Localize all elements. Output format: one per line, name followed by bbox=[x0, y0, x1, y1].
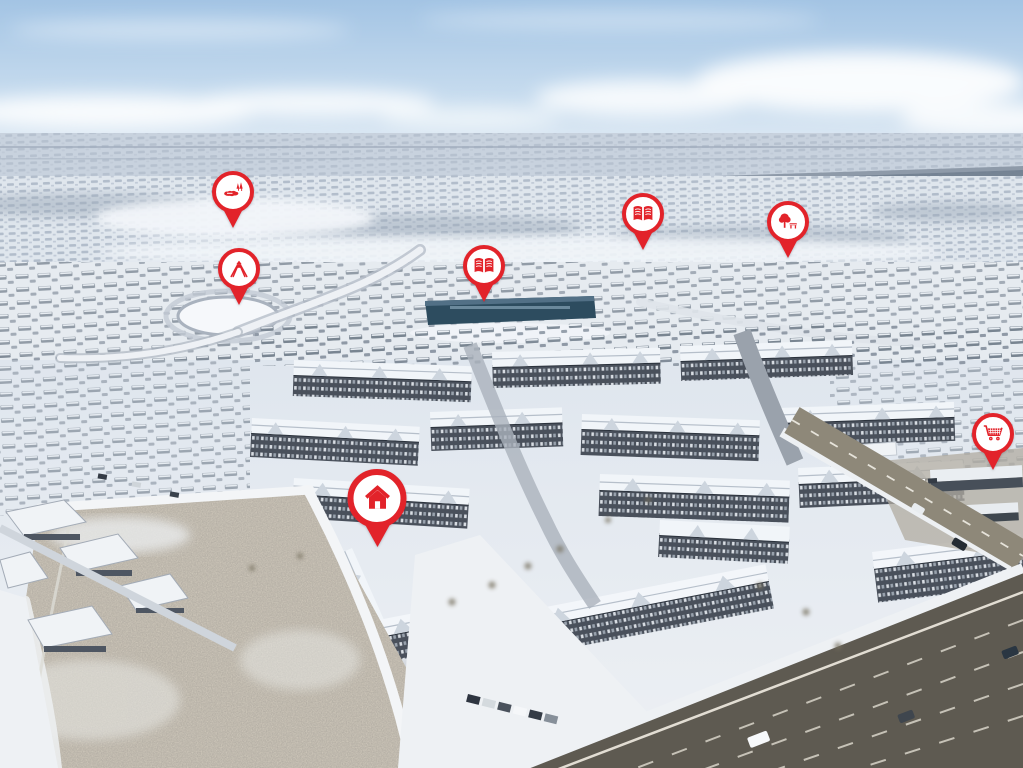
pin-circle bbox=[348, 469, 407, 528]
open-book-icon bbox=[631, 202, 655, 226]
house-icon bbox=[360, 481, 394, 515]
marker-home bbox=[348, 469, 407, 547]
pin-circle bbox=[972, 413, 1014, 455]
pin-circle bbox=[212, 171, 254, 213]
marker-shopping bbox=[972, 413, 1014, 470]
aerial-listing-photo bbox=[0, 0, 1023, 768]
marker-park bbox=[767, 201, 809, 258]
pond-trees-icon bbox=[221, 180, 245, 204]
pin-circle bbox=[463, 245, 505, 287]
tree-bench-icon bbox=[776, 210, 800, 234]
pin-circle bbox=[218, 248, 260, 290]
playground-icon bbox=[227, 257, 251, 281]
marker-pond-park bbox=[212, 171, 254, 228]
aerial-photo-background bbox=[0, 0, 1023, 768]
marker-school-west bbox=[463, 245, 505, 302]
marker-playground bbox=[218, 248, 260, 305]
pin-circle bbox=[622, 193, 664, 235]
pin-circle bbox=[767, 201, 809, 243]
shopping-cart-icon bbox=[981, 422, 1005, 446]
open-book-icon bbox=[472, 254, 496, 278]
marker-school-east bbox=[622, 193, 664, 250]
